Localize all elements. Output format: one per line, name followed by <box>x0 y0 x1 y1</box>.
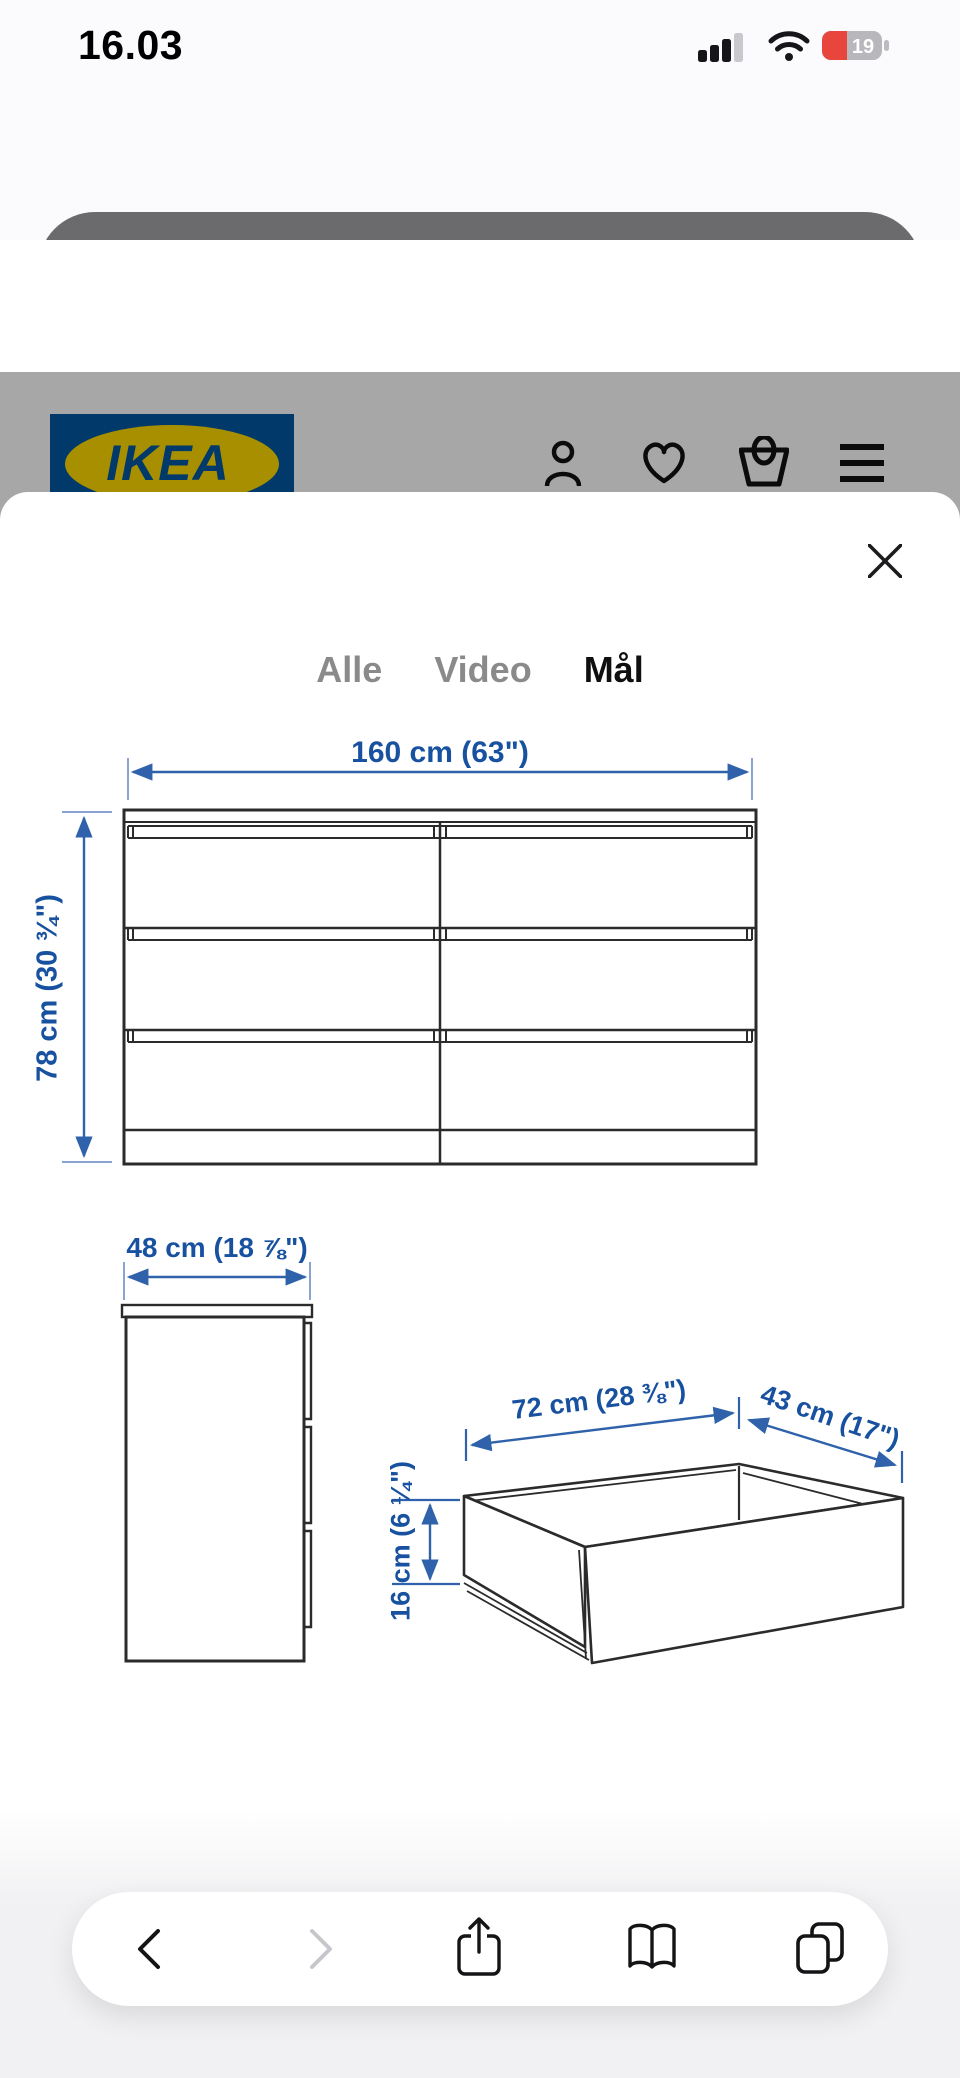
tabs-icon[interactable] <box>790 1920 850 1978</box>
browser-address-section: ikea.com <box>0 100 960 240</box>
status-bar: 16.03 19 <box>0 0 960 100</box>
dimension-label-drawer-height: 16 cm (6 ¼") <box>386 1461 417 1621</box>
ikea-logo-text: IKEA <box>106 435 229 491</box>
registered-trademark: ® <box>272 427 284 444</box>
forward-icon[interactable] <box>300 1929 340 1969</box>
profile-icon[interactable] <box>541 440 585 488</box>
wifi-icon <box>768 30 810 62</box>
media-tabs: Alle Video Mål <box>0 640 960 700</box>
dimension-label-depth: 48 cm (18 ⅞") <box>126 1232 307 1264</box>
back-icon[interactable] <box>130 1929 170 1969</box>
browser-toolbar-area <box>0 1810 960 2078</box>
bookmarks-icon[interactable] <box>624 1922 680 1976</box>
menu-icon[interactable] <box>840 444 884 484</box>
tab-alle[interactable]: Alle <box>316 649 382 691</box>
clock: 16.03 <box>78 22 183 69</box>
favorites-heart-icon[interactable] <box>641 442 687 486</box>
browser-toolbar <box>72 1892 888 2006</box>
dimension-label-height: 78 cm (30 ¾") <box>32 894 65 1082</box>
tab-maal[interactable]: Mål <box>584 649 644 691</box>
cellular-signal-icon <box>698 32 752 62</box>
basket-icon[interactable] <box>739 436 789 488</box>
battery-icon: 19 <box>822 31 892 61</box>
close-x-icon[interactable] <box>868 544 902 578</box>
share-icon[interactable] <box>451 1916 507 1982</box>
smart-app-banner: IKEA IKEA Åbn i appen IKEA ÅBN <box>0 240 960 372</box>
tab-video[interactable]: Video <box>434 649 531 691</box>
dimension-label-width: 160 cm (63") <box>351 736 529 770</box>
battery-percent: 19 <box>852 36 874 58</box>
